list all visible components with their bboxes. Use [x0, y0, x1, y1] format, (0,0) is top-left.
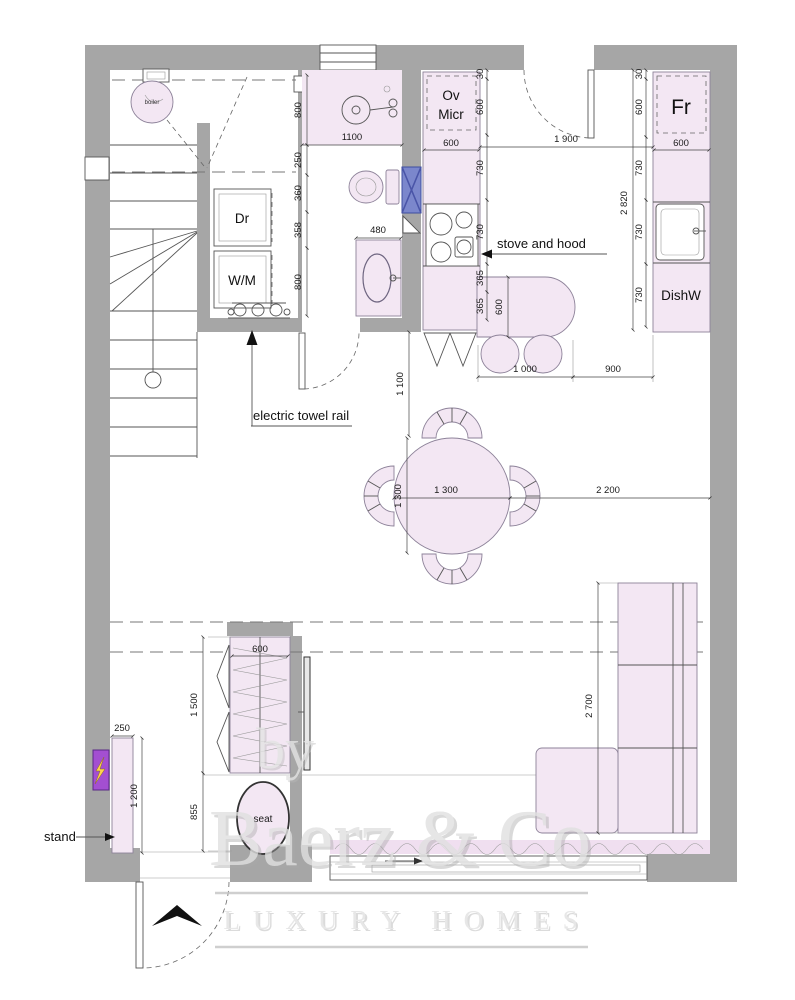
micro-label: Micr — [438, 107, 464, 122]
dim-label: 600 — [475, 99, 486, 115]
dim-label: 600 — [494, 299, 505, 315]
oven-label: Ov — [442, 88, 460, 103]
stove-icon — [426, 204, 478, 266]
hall: 1 100 — [395, 332, 409, 436]
boiler-label: boiler — [145, 100, 160, 106]
dim-label: 2 200 — [596, 485, 620, 496]
kitchen: Ov Micr 600 Fr 600 — [402, 69, 710, 382]
watermark-tagline: LUXURY HOMES — [223, 905, 590, 935]
dim-label: 30 — [475, 69, 486, 80]
floor-plan-page: boiler Dr W/M — [0, 0, 795, 1000]
dim-label: 1 000 — [513, 364, 537, 375]
bathroom-door-swing — [304, 333, 359, 389]
laundry-nook: Dr W/M — [214, 189, 290, 318]
fridge-label: Fr — [671, 96, 691, 119]
dim-label: 1 300 — [434, 485, 458, 496]
toilet-icon — [349, 170, 399, 204]
dim-label: 1 200 — [129, 784, 140, 808]
dining-table — [394, 438, 510, 554]
dim-label: 900 — [605, 364, 621, 375]
dim-label: 480 — [370, 225, 386, 236]
floor-plan: boiler Dr W/M — [0, 0, 795, 1000]
kitchen-door-fold — [450, 333, 476, 366]
wall-niche-left — [85, 157, 109, 180]
stove-hood-callout: stove and hood — [481, 236, 607, 259]
washer-label: W/M — [228, 273, 256, 288]
dim-label: 1100 — [342, 132, 362, 143]
dim-label: 800 — [293, 102, 304, 118]
kitchen-door-fold — [424, 333, 450, 366]
dim-label: 2 820 — [619, 191, 630, 215]
stove-hood-label: stove and hood — [497, 236, 586, 251]
dim-label: 1 300 — [393, 484, 404, 508]
dim-label: 365 — [475, 270, 486, 286]
basin-icon — [356, 240, 401, 316]
dim-label: 2 700 — [584, 694, 595, 718]
dining-set: 1 300 2 200 1 300 — [364, 408, 710, 584]
kitchen-door — [524, 70, 594, 138]
dim-label: 600 — [252, 644, 268, 655]
dim-label: 365 — [475, 298, 486, 314]
dim-label: 730 — [475, 160, 486, 176]
dim-label: 600 — [673, 138, 689, 149]
watermark-brand: Baerz & Co — [209, 795, 591, 883]
stand-label: stand — [44, 829, 76, 844]
breakfast-bar — [477, 277, 575, 337]
boiler: boiler — [131, 69, 173, 123]
dim-label: 600 — [443, 138, 459, 149]
dim-label: 1 900 — [554, 134, 578, 145]
dishwasher-label: DishW — [661, 288, 701, 303]
dim-label: 250 — [114, 723, 130, 734]
dryer-label: Dr — [235, 211, 250, 226]
bathroom-door-leaf — [299, 333, 305, 389]
dim-label: 730 — [475, 224, 486, 240]
dim-label: 855 — [189, 804, 200, 820]
dim-label: 1 100 — [395, 372, 406, 396]
watermark-by: by — [256, 716, 314, 781]
dim-label: 730 — [634, 160, 645, 176]
dim-label: 358 — [293, 222, 304, 238]
dim-label: 250 — [293, 152, 304, 168]
dim-label: 800 — [293, 274, 304, 290]
bathroom: 800 1100 250 360 358 800 480 — [293, 70, 402, 389]
watermark: by by Baerz & Co Baerz & Co LUXURY HOMES… — [209, 716, 594, 947]
dim-label: 730 — [634, 224, 645, 240]
dim-label: 600 — [634, 99, 645, 115]
dim-label: 1 500 — [189, 693, 200, 717]
towel-rail-label: electric towel rail — [253, 408, 349, 423]
dim-label: 730 — [634, 287, 645, 303]
dim-label: 30 — [634, 69, 645, 80]
sink-icon — [656, 204, 706, 260]
dim-label: 360 — [293, 185, 304, 201]
north-arrow — [152, 905, 202, 926]
